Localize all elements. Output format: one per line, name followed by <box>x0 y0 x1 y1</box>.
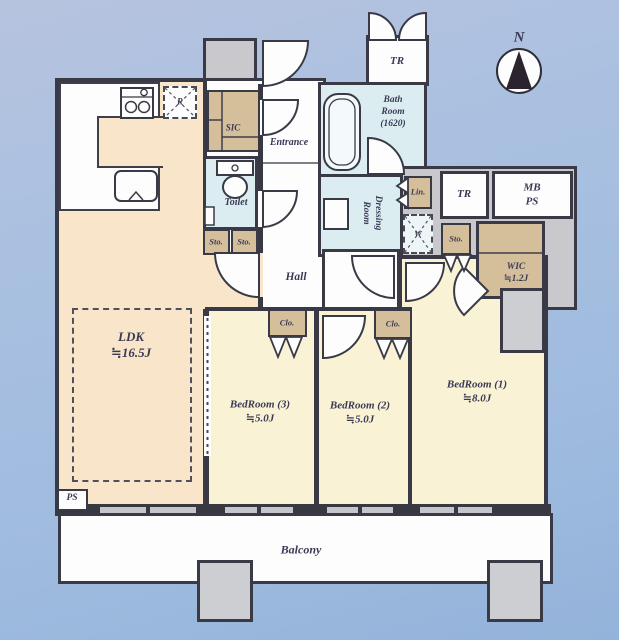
sic-closet <box>207 90 260 152</box>
label-north: N <box>514 29 525 48</box>
kitchen-counter-notch <box>97 116 163 168</box>
ldk-nook <box>203 250 263 309</box>
clo-bedroom3 <box>268 309 307 337</box>
room-dressing <box>318 174 404 257</box>
room-bathroom <box>318 82 427 178</box>
clo-bedroom2 <box>374 309 412 339</box>
storage-sto-1 <box>203 229 230 255</box>
storage-sto-2 <box>231 229 258 255</box>
ldk-dashed-area <box>72 308 192 482</box>
mbps-box <box>492 171 573 219</box>
balcony-pillar-left <box>197 560 253 622</box>
trunk-room-top <box>366 35 429 86</box>
compass-icon <box>497 49 541 93</box>
room-bedroom3 <box>205 307 318 513</box>
floor-plan: LDK≒16.5J BedRoom (3)≒5.0J BedRoom (2)≒5… <box>0 0 619 640</box>
trunk-room-right <box>440 171 489 219</box>
ps-box <box>57 489 88 511</box>
room-toilet <box>203 156 258 230</box>
refrigerator-space <box>163 86 197 119</box>
balcony-pillar-right <box>487 560 543 622</box>
washer-space <box>403 214 433 254</box>
storage-sto-right <box>441 223 471 255</box>
lin-closet <box>404 176 432 209</box>
balcony <box>58 513 553 584</box>
corridor <box>322 249 400 313</box>
pillar-bedroom1 <box>500 288 545 353</box>
